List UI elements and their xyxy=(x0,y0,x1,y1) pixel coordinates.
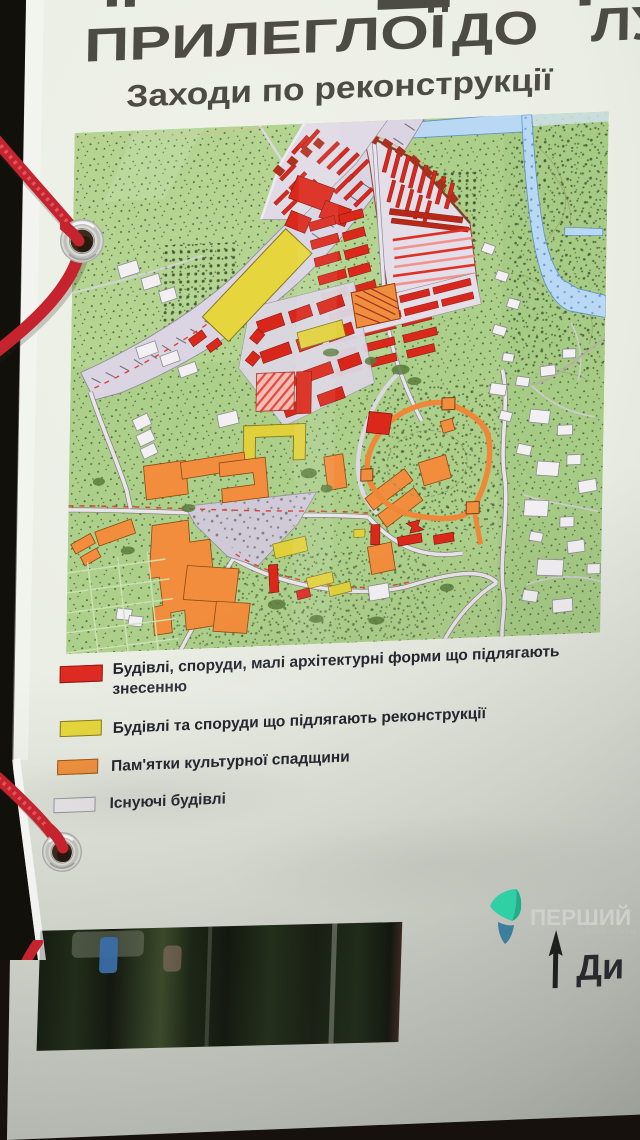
svg-text:КАНАЛ СОЦІАЛЬНИХ НОВИН: КАНАЛ СОЦІАЛЬНИХ НОВИН xyxy=(531,929,636,936)
svg-text:ПЕРШИЙ: ПЕРШИЙ xyxy=(530,905,631,930)
